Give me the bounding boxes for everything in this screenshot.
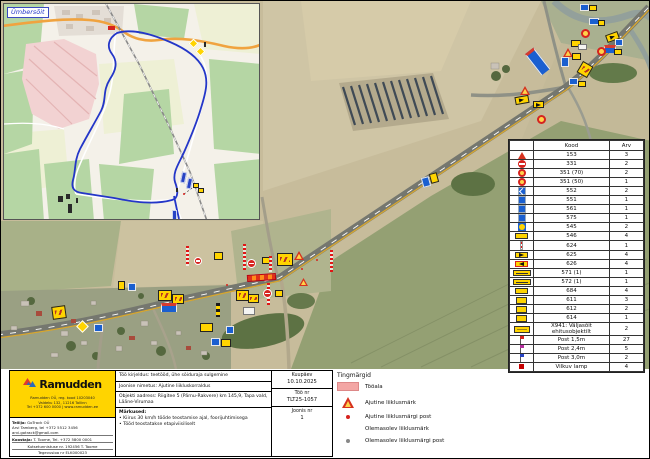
- tri-legend-icon: [342, 397, 354, 408]
- ramudden-wordmark: Ramudden: [39, 378, 101, 391]
- sign-qty: 4: [609, 287, 643, 296]
- legend-item-label: Ajutine liiklusmärgi post: [365, 414, 431, 420]
- sign-table-row: 6844: [510, 287, 644, 296]
- sheet-number-value: 1: [300, 415, 303, 421]
- certificate-number: Kutsetunnistuse nr. 192456 T. Toome: [12, 443, 113, 450]
- white-map-sign: [578, 44, 587, 50]
- speed-map-sign: [537, 115, 546, 124]
- bluev-map-sign: [172, 210, 177, 220]
- sign-code: Post 2,4m: [534, 345, 610, 354]
- sign-qty: 3: [609, 151, 643, 160]
- yellow-map-sign: [221, 339, 231, 347]
- sign-table-row: 6141: [510, 314, 644, 323]
- sign-code: 572 (1): [534, 278, 610, 287]
- sign-code: 624: [534, 241, 610, 251]
- sign-code: 571 (1): [534, 269, 610, 278]
- sign-qty: 2: [609, 354, 643, 363]
- postline-map-sign: [269, 256, 272, 272]
- flag-red-sign-icon: [518, 336, 525, 344]
- dark-map-sign: [68, 204, 72, 213]
- sign-table-row: 572 (1)1: [510, 278, 644, 287]
- blue-map-sign: [615, 39, 623, 46]
- sign-table-row: Post 1,5m27: [510, 336, 644, 345]
- post-sign-icon: [520, 241, 523, 250]
- sign-table-header-qty: Arv: [609, 141, 643, 151]
- sign-table-row: 571 (1)1: [510, 269, 644, 278]
- arrl-sign-icon: [515, 261, 528, 267]
- sign-table-row: Post 3,0m2: [510, 354, 644, 363]
- sign-code: 546: [534, 232, 610, 241]
- board-sign-icon: [513, 279, 531, 285]
- legend-item: Ajutine liiklusmärk: [337, 397, 497, 408]
- sign-table-row: 351 (70)2: [510, 169, 644, 178]
- sign-table-row: 5611: [510, 205, 644, 214]
- sign-qty: 4: [609, 251, 643, 260]
- ysm-sign-icon: [516, 306, 527, 313]
- inset-detour-map: Ümbersõit: [3, 3, 260, 220]
- sign-code: 552: [534, 187, 610, 196]
- legend-item-label: Olemasolev liiklusmärgi post: [365, 438, 444, 444]
- postline-map-sign: [243, 244, 246, 270]
- sign-qty: 1: [609, 278, 643, 287]
- sign-code: 551: [534, 196, 610, 205]
- sign-qty: 1: [609, 314, 643, 323]
- sign-qty: 2: [609, 187, 643, 196]
- blue-sign-icon: [518, 214, 526, 222]
- sign-table-row: 6254: [510, 251, 644, 260]
- note-1: • Kiirus 30 km/h tööde teostamise ajal, …: [119, 416, 248, 421]
- dot-map-sign: [183, 193, 185, 195]
- title-block: Ramudden Ramudden OÜ, reg. kood 10203040…: [9, 370, 333, 457]
- noentry-map-sign: [247, 259, 256, 268]
- sign-table-row: 6264: [510, 260, 644, 269]
- sign-qty: 1: [609, 205, 643, 214]
- ylg-map-sign: [51, 305, 67, 320]
- client-email: arvi.gotrack@gmail.com: [12, 430, 58, 435]
- sign-table-row: 1533: [510, 151, 644, 160]
- flag-mag-sign-icon: [518, 345, 525, 353]
- title-block-company-column: Ramudden Ramudden OÜ, reg. kood 10203040…: [10, 371, 116, 456]
- sign-qty: 2: [609, 169, 643, 178]
- sign-code: Post 3,0m: [534, 354, 610, 363]
- notes-title: Märkused:: [119, 410, 146, 415]
- yellow-map-sign: [200, 323, 213, 332]
- sign-qty: 2: [609, 305, 643, 314]
- speed-map-sign: [581, 29, 590, 38]
- author-contact: T. Toome, Tel. +372 5800 0001: [33, 437, 92, 442]
- author-label: Koostaja:: [12, 437, 32, 442]
- speed-sign-icon: [518, 178, 526, 186]
- lamp-sign-icon: [519, 364, 524, 369]
- sheet-number-label: Joonis nr: [292, 409, 313, 414]
- sign-code: 626: [534, 260, 610, 269]
- ylg-map-sign: [277, 253, 293, 266]
- sign-table-row: 6113: [510, 296, 644, 305]
- ramudden-logo-icon: [23, 374, 37, 393]
- sign-code: 684: [534, 287, 610, 296]
- ramudden-address-line3: Tel +372 600 0000 | www.ramudden.ee: [12, 405, 113, 410]
- speed-map-sign: [597, 47, 606, 56]
- sign-table-header-icon: [510, 141, 534, 151]
- job-number-label: Töö nr: [295, 391, 310, 396]
- sign-table-row: Vilkuv lamp4: [510, 363, 644, 372]
- ysm-sign-icon: [516, 315, 527, 322]
- sign-code: Post 1,5m: [534, 336, 610, 345]
- white-map-sign: [243, 307, 255, 315]
- blue-sign-icon: [518, 196, 526, 204]
- arrow-map-sign: [533, 101, 544, 108]
- sign-code: 575: [534, 214, 610, 223]
- legend-item-label: Tööala: [365, 384, 383, 390]
- sign-qty: 2: [609, 323, 643, 336]
- sign-table-header-code: Kood: [534, 141, 610, 151]
- sign-code: 351 (70): [534, 169, 610, 178]
- blue-sign-icon: [518, 205, 526, 213]
- sign-code: X941: Väljasõit ehitusobjektilt: [534, 323, 610, 336]
- dot-red-legend-icon: [346, 415, 350, 419]
- board-sign-icon: [513, 270, 531, 276]
- legend-title: Tingmärgid: [337, 372, 497, 379]
- blue-map-sign: [561, 57, 569, 67]
- sign-table-row: 6241: [510, 241, 644, 251]
- speed-sign-icon: [518, 169, 526, 177]
- sign-code: 153: [534, 151, 610, 160]
- yellow-map-sign: [598, 20, 605, 26]
- sign-table-row: 5522: [510, 187, 644, 196]
- blue-map-sign: [580, 4, 589, 11]
- blue-map-sign: [226, 326, 234, 334]
- sign-table-row: 5751: [510, 214, 644, 223]
- job-number-value: TLT25-1057: [287, 397, 317, 403]
- postline-map-sign: [186, 246, 189, 266]
- sign-table-row: 5452: [510, 223, 644, 232]
- sign-code: 351 (50): [534, 178, 610, 187]
- dark-map-sign: [76, 198, 78, 203]
- yellow-map-sign: [198, 188, 204, 193]
- flag-blue-sign-icon: [518, 354, 525, 362]
- sign-code: 611: [534, 296, 610, 305]
- yellow-map-sign: [578, 81, 586, 87]
- sign-table-row: 6122: [510, 305, 644, 314]
- title-block-description-column: Töö kirjeldus: teetööd, ühe sõiduraja su…: [116, 371, 272, 456]
- sign-qty: 1: [609, 178, 643, 187]
- blue-map-sign: [94, 324, 103, 332]
- yellow-map-sign: [118, 281, 125, 290]
- date-label: Kuupäev: [292, 373, 313, 378]
- info-map-sign: [161, 303, 177, 312]
- ywide-sign-icon: [515, 288, 528, 294]
- legend-item: Ajutine liiklusmärgi post: [337, 414, 497, 420]
- ylg-map-sign: [248, 294, 259, 303]
- dot-map-sign: [316, 259, 318, 261]
- sign-code: Vilkuv lamp: [534, 363, 610, 372]
- ywide-sign-icon: [515, 233, 528, 239]
- sign-table-row: 3312: [510, 160, 644, 169]
- ytext-sign-icon: [514, 326, 530, 333]
- inset-label: Ümbersõit: [7, 7, 49, 18]
- sign-code: 561: [534, 205, 610, 214]
- legend-item: Olemasolev liiklusmärk: [337, 426, 497, 432]
- sign-qty: 27: [609, 336, 643, 345]
- noentry-map-sign: [194, 257, 202, 265]
- sign-qty: 3: [609, 296, 643, 305]
- ta-plan-sheet: Ümbersõit Kood Arv 15333312351 (70)2351 …: [0, 0, 650, 459]
- legend-item: Tööala: [337, 382, 497, 391]
- blue-map-sign: [569, 78, 578, 85]
- bluearr-sign-icon: [518, 187, 526, 195]
- dark-map-sign: [58, 196, 63, 202]
- title-block-meta-column: Kuupäev 10.10.2025 Töö nr TLT25-1057 Joo…: [272, 371, 332, 456]
- date-value: 10.10.2025: [287, 379, 317, 385]
- sign-quantity-table: Kood Arv 15333312351 (70)2351 (50)155225…: [508, 139, 645, 373]
- dark-map-sign: [176, 188, 178, 192]
- drawing-name: Joonise nimetus: Ajutine liikluskorraldu…: [116, 382, 271, 393]
- notes-cell: Märkused: • Kiirus 30 km/h tööde teostam…: [116, 408, 271, 456]
- sign-code: 612: [534, 305, 610, 314]
- red-map-sign: [108, 26, 115, 30]
- postbw-map-sign: [216, 303, 220, 317]
- noentry-map-sign: [263, 289, 272, 298]
- sign-qty: 1: [609, 214, 643, 223]
- sign-code: 625: [534, 251, 610, 260]
- yellow-map-sign: [572, 53, 581, 60]
- ramudden-logo-cell: Ramudden Ramudden OÜ, reg. kood 10203040…: [10, 371, 115, 418]
- tri-sign-icon: [518, 152, 526, 159]
- dot-map-sign: [226, 284, 228, 286]
- blue-map-sign: [128, 283, 136, 291]
- object-address: Objekti aadress: Riigitee 5 (Pärnu-Rakve…: [116, 392, 271, 408]
- symbol-legend: Tingmärgid TööalaAjutine liiklusmärkAjut…: [337, 372, 497, 450]
- arrr-sign-icon: [515, 252, 528, 258]
- yb-sign-icon: [518, 223, 526, 231]
- yellow-map-sign: [589, 5, 597, 11]
- dot-gray-legend-icon: [346, 439, 350, 443]
- dark-map-sign: [204, 42, 206, 47]
- postline-map-sign: [330, 250, 333, 272]
- yellow-map-sign: [614, 49, 622, 55]
- legend-item-label: Ajutine liiklusmärk: [365, 400, 416, 406]
- sign-qty: 1: [609, 269, 643, 278]
- yellow-map-sign: [214, 252, 223, 260]
- sign-qty: 4: [609, 232, 643, 241]
- licence-number: Tegevusloa nr ELK000023: [12, 450, 113, 455]
- sign-qty: 5: [609, 345, 643, 354]
- legend-item: Olemasolev liiklusmärgi post: [337, 438, 497, 444]
- sign-code: 614: [534, 314, 610, 323]
- ysm-sign-icon: [516, 297, 527, 304]
- work-description: Töö kirjeldus: teetööd, ühe sõiduraja su…: [116, 371, 271, 382]
- sign-qty: 1: [609, 241, 643, 251]
- sign-table-row: 5464: [510, 232, 644, 241]
- sign-qty: 4: [609, 260, 643, 269]
- dot-map-sign: [301, 268, 303, 270]
- inset-basemap: [4, 4, 260, 220]
- yellow-map-sign: [275, 290, 283, 297]
- dark-map-sign: [66, 194, 70, 199]
- sign-qty: 2: [609, 223, 643, 232]
- sign-qty: 2: [609, 160, 643, 169]
- noentry-sign-icon: [518, 160, 526, 168]
- note-2: • Tööd teostatakse etapiviisiliselt: [119, 422, 195, 427]
- blue-map-sign: [211, 338, 220, 346]
- sign-code: 545: [534, 223, 610, 232]
- sign-table-row: X941: Väljasõit ehitusobjektilt2: [510, 323, 644, 336]
- sign-qty: 4: [609, 363, 643, 372]
- ylg-map-sign: [158, 290, 172, 301]
- area-legend-icon: [337, 382, 359, 391]
- sign-table-row: 5511: [510, 196, 644, 205]
- sign-table-row: Post 2,4m5: [510, 345, 644, 354]
- title-block-contacts: Tellija: GoTrack OÜ Arvi Tamberg, tel +3…: [10, 418, 115, 456]
- sign-qty: 1: [609, 196, 643, 205]
- sign-code: 331: [534, 160, 610, 169]
- legend-item-label: Olemasolev liiklusmärk: [365, 426, 429, 432]
- sign-table-row: 351 (50)1: [510, 178, 644, 187]
